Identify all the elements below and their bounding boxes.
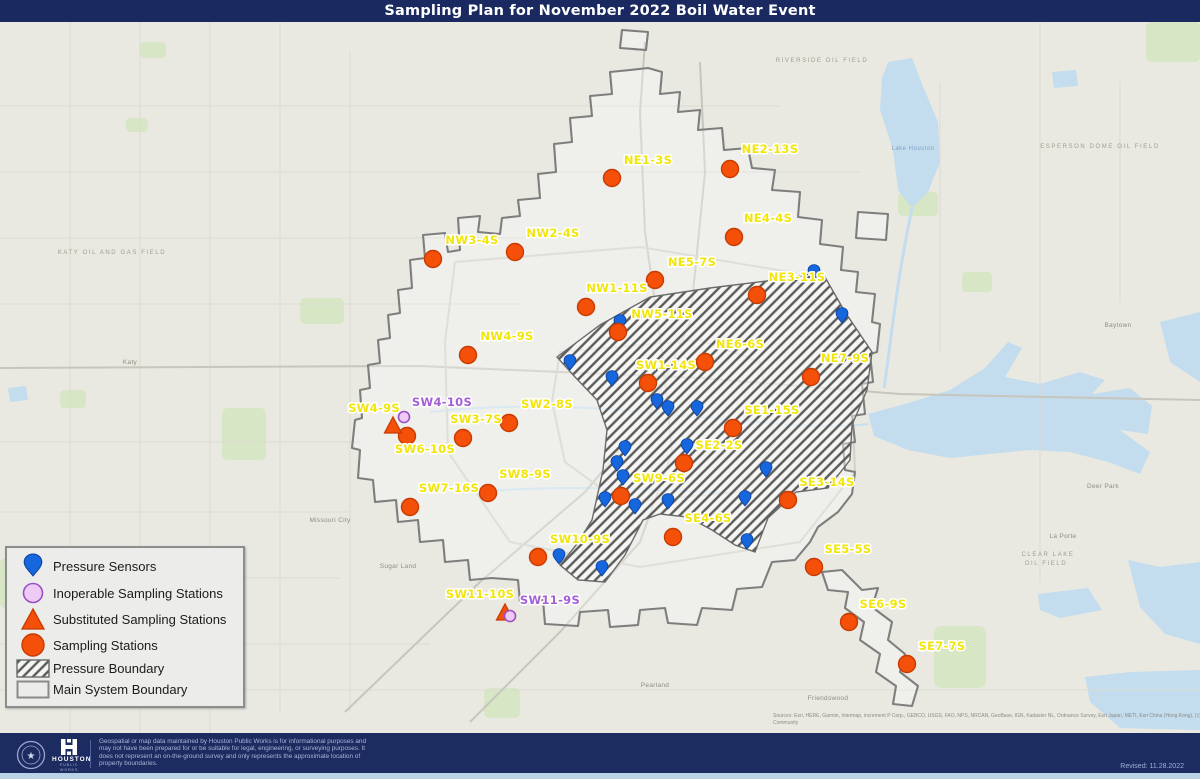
inoperable-station-SW4-10S [399, 412, 410, 423]
station-label-SE3-14S: SE3-14S [799, 475, 854, 489]
sampling-station-SW8-9S [480, 485, 497, 502]
pressure-sensor-icon [20, 552, 46, 580]
sampling-station-NW4-9S [460, 347, 477, 364]
substituted-station-icon [20, 607, 46, 631]
agency-name: HOUSTON [52, 756, 86, 763]
legend-label-pressure-boundary: Pressure Boundary [53, 661, 164, 676]
sampling-station-SW7-16S [402, 499, 419, 516]
place-label: ESPERSON DOME OIL FIELD [1040, 144, 1160, 150]
station-label-SE2-2S: SE2-2S [696, 438, 743, 452]
place-label: Sugar Land [380, 563, 417, 570]
place-label: Katy [123, 359, 138, 366]
legend-item-pressure-boundary: Pressure Boundary [13, 658, 237, 679]
station-label-SE6-9S: SE6-9S [860, 597, 907, 611]
sampling-station-SE6-9S [841, 614, 858, 631]
place-label: CLEAR LAKE [1021, 552, 1074, 558]
station-label-NE2-13S: NE2-13S [742, 142, 799, 156]
sampling-station-SE7-7S [899, 656, 916, 673]
hpw-h-icon [59, 738, 79, 756]
sampling-station-icon [20, 632, 46, 658]
place-label: Friendswood [808, 695, 849, 702]
sampling-station-NE1-3S [604, 170, 621, 187]
legend-item-sampling: Sampling Stations [13, 632, 237, 658]
station-label-SE1-15S: SE1-15S [744, 403, 799, 417]
station-label-NE4-4S: NE4-4S [744, 211, 792, 225]
map-document: Sampling Plan for November 2022 Boil Wat… [0, 0, 1200, 779]
station-label-NE6-6S: NE6-6S [716, 337, 764, 351]
station-label-SW1-14S: SW1-14S [636, 358, 696, 372]
footer-strip [0, 773, 1200, 779]
sampling-station-NW5-11S [610, 324, 627, 341]
place-label: Deer Park [1087, 483, 1119, 490]
main-boundary-icon [16, 680, 50, 699]
svg-text:★: ★ [27, 751, 36, 762]
sampling-station-SE3-14S [780, 492, 797, 509]
station-label-NW3-4S: NW3-4S [445, 233, 498, 247]
legend-label-sampling: Sampling Stations [53, 638, 158, 653]
sampling-station-NE2-13S [722, 161, 739, 178]
station-label-NE7-9S: NE7-9S [821, 351, 869, 365]
sampling-station-SW10-9S [530, 549, 547, 566]
sampling-station-NW3-4S [425, 251, 442, 268]
sampling-station-NE7-9S [803, 369, 820, 386]
place-label: OIL FIELD [1025, 561, 1068, 567]
attribution-line1: Sources: Esri, HERE, Garmin, Intermap, i… [773, 713, 1200, 719]
sampling-station-SW2-8S [501, 415, 518, 432]
legend-label-substituted: Substituted Sampling Stations [53, 612, 226, 627]
page-title: Sampling Plan for November 2022 Boil Wat… [384, 3, 815, 19]
city-seal-icon: ★ [16, 740, 46, 770]
sampling-station-NE3-11S [749, 287, 766, 304]
station-label-NW1-11S: NW1-11S [586, 281, 647, 295]
place-label: Lake Houston [891, 146, 934, 152]
station-label-NE5-7S: NE5-7S [668, 255, 716, 269]
houston-public-works-logo: HOUSTON PUBLIC WORKS [52, 738, 86, 773]
sampling-station-SW9-6S [613, 488, 630, 505]
station-label-NE3-11S: NE3-11S [769, 270, 826, 284]
inoperable-station-icon [21, 581, 45, 605]
station-label-SW8-9S: SW8-9S [499, 467, 551, 481]
station-label-SW11-9S: SW11-9S [520, 593, 580, 607]
legend-label-inoperable: Inoperable Sampling Stations [53, 586, 223, 601]
place-label: Missouri City [309, 517, 351, 524]
sampling-station-NE4-4S [726, 229, 743, 246]
station-label-SW6-10S: SW6-10S [395, 442, 455, 456]
station-label-NW5-11S: NW5-11S [631, 307, 692, 321]
legend-label-pressure-sensor: Pressure Sensors [53, 559, 156, 574]
inoperable-station-SW11-9S [505, 611, 516, 622]
station-label-SE5-5S: SE5-5S [825, 542, 872, 556]
place-label: La Porte [1050, 533, 1077, 540]
sampling-station-SW3-7S [455, 430, 472, 447]
station-label-SE7-7S: SE7-7S [919, 639, 966, 653]
sampling-station-SW1-14S [640, 375, 657, 392]
station-label-NE1-3S: NE1-3S [624, 153, 672, 167]
agency-subname: PUBLIC WORKS [52, 763, 86, 773]
place-label: RIVERSIDE OIL FIELD [776, 58, 869, 64]
place-label: Baytown [1104, 322, 1131, 329]
sampling-station-SE5-5S [806, 559, 823, 576]
station-label-SE4-6S: SE4-6S [685, 511, 732, 525]
legend: Pressure SensorsInoperable Sampling Stat… [5, 546, 245, 708]
main-system-boundary-path-2 [620, 30, 648, 50]
station-label-SW4-9S: SW4-9S [348, 401, 400, 415]
disclaimer-text: Geospatial or map data maintained by Hou… [99, 738, 367, 768]
legend-label-main-boundary: Main System Boundary [53, 682, 187, 697]
main-system-boundary-path-1 [856, 212, 888, 240]
revised-date: Revised: 11.28.2022 [1120, 763, 1184, 770]
sampling-station-NE5-7S [647, 272, 664, 289]
sampling-station-SE2-2S [676, 455, 693, 472]
sampling-station-NE6-6S [697, 354, 714, 371]
legend-item-inoperable: Inoperable Sampling Stations [13, 580, 237, 606]
attribution-line2: Community [773, 720, 799, 726]
station-label-SW4-10S: SW4-10S [412, 395, 472, 409]
pressure-boundary-icon [16, 659, 50, 678]
sampling-station-NW1-11S [578, 299, 595, 316]
station-label-SW7-16S: SW7-16S [419, 481, 479, 495]
station-label-SW10-9S: SW10-9S [550, 532, 610, 546]
station-label-SW9-6S: SW9-6S [633, 471, 685, 485]
legend-item-substituted: Substituted Sampling Stations [13, 606, 237, 632]
footer-divider [90, 740, 91, 768]
station-label-SW2-8S: SW2-8S [521, 397, 573, 411]
sampling-station-SE4-6S [665, 529, 682, 546]
title-bar: Sampling Plan for November 2022 Boil Wat… [0, 0, 1200, 22]
sampling-station-SE1-15S [725, 420, 742, 437]
station-label-SW11-10S: SW11-10S [446, 587, 514, 601]
place-label: Pearland [641, 682, 670, 689]
legend-item-pressure-sensor: Pressure Sensors [13, 552, 237, 580]
station-label-SW3-7S: SW3-7S [450, 412, 502, 426]
legend-item-main-boundary: Main System Boundary [13, 679, 237, 700]
station-label-NW2-4S: NW2-4S [526, 226, 579, 240]
place-label: KATY OIL AND GAS FIELD [58, 250, 166, 256]
sampling-station-NW2-4S [507, 244, 524, 261]
station-label-NW4-9S: NW4-9S [480, 329, 533, 343]
